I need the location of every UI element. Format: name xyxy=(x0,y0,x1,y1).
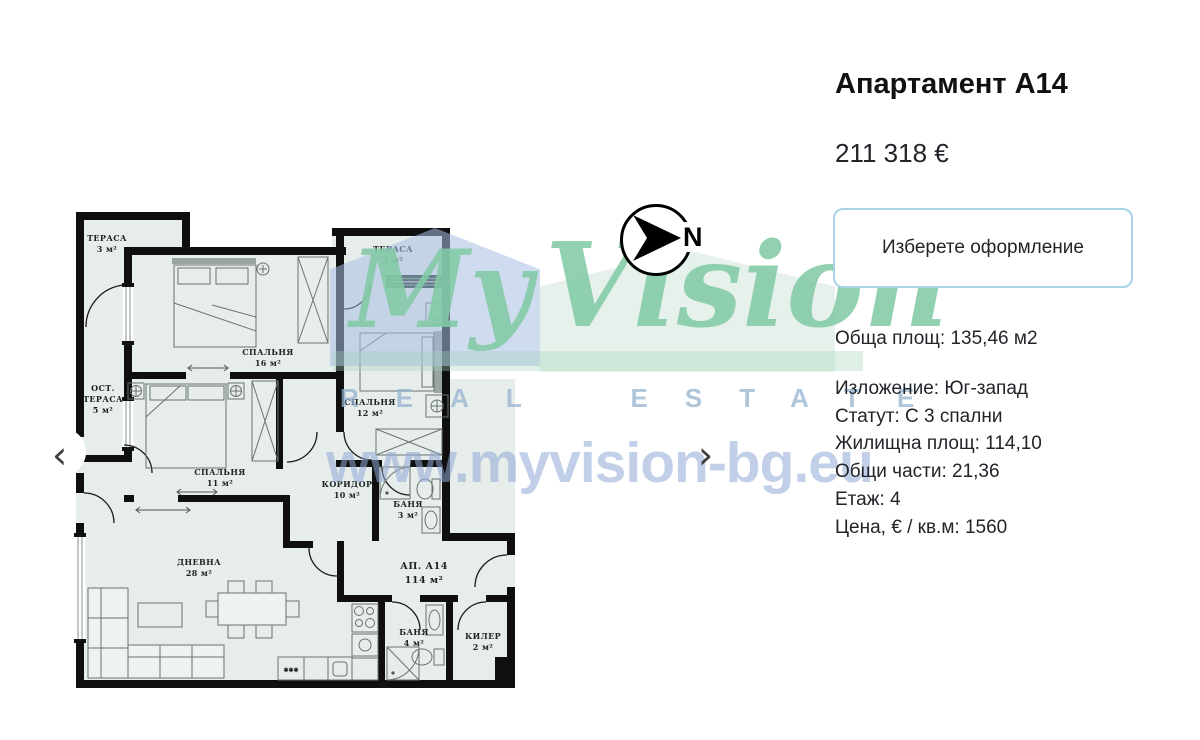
room-area: 4 м² xyxy=(404,638,425,648)
room-label: КИЛЕР xyxy=(465,631,501,641)
page-title: Апартамент А14 xyxy=(835,68,1068,101)
terrace-railing xyxy=(386,275,442,288)
room-label: БАНЯ xyxy=(393,499,423,509)
room-label: ОСТ. xyxy=(91,383,115,393)
room-area: 2 м² xyxy=(473,642,494,652)
room-label: БАНЯ xyxy=(399,627,429,637)
room-area: 114 м² xyxy=(405,575,444,586)
room-area: 16 м² xyxy=(255,358,281,368)
room-area: 12 м² xyxy=(357,408,383,418)
detail-floor: Етаж: 4 xyxy=(835,486,1042,514)
detail-living-area: Жилищна площ: 114,10 xyxy=(835,430,1042,458)
detail-common-parts: Общи части: 21,36 xyxy=(835,458,1042,486)
room-area: 3 м² xyxy=(383,255,404,265)
room-area: 28 м² xyxy=(186,568,212,578)
compass-north-label: N xyxy=(681,222,705,252)
detail-status: Статут: С 3 спални xyxy=(835,403,1042,431)
listing-page: ✱✱✱ ТЕРАСА 3 м² СПАЛЬНЯ 16 м² ОСТ. Т xyxy=(0,0,1200,740)
room-label: ТЕРАСА xyxy=(83,394,123,404)
room-area: 5 м² xyxy=(93,405,114,415)
next-plan-button[interactable]: › xyxy=(698,437,713,473)
room-label: СПАЛЬНЯ xyxy=(344,397,396,407)
room-area: 10 м² xyxy=(334,490,360,500)
total-area-label: Обща площ: 135,46 м2 xyxy=(835,328,1038,350)
room-label: СПАЛЬНЯ xyxy=(242,347,294,357)
floor-plan: ✱✱✱ ТЕРАСА 3 м² СПАЛЬНЯ 16 м² ОСТ. Т xyxy=(60,205,530,695)
prev-plan-button[interactable]: ‹ xyxy=(52,437,67,473)
detail-exposure: Изложение: Юг-запад xyxy=(835,375,1042,403)
room-label: КОРИДОР xyxy=(322,479,373,489)
room-label: АП. А14 xyxy=(400,561,448,572)
kitchen-marks: ✱✱✱ xyxy=(283,667,298,674)
room-label: ТЕРАСА xyxy=(87,233,127,243)
room-label: СПАЛЬНЯ xyxy=(194,467,246,477)
room-area: 11 м² xyxy=(207,478,233,488)
north-arrow-icon xyxy=(623,207,689,273)
room-label: ДНЕВНА xyxy=(177,557,221,567)
room-area: 3 м² xyxy=(97,244,118,254)
detail-price-sqm: Цена, € / кв.м: 1560 xyxy=(835,514,1042,542)
choose-layout-button[interactable]: Изберете оформление xyxy=(833,208,1133,288)
room-label: ТЕРАСА xyxy=(373,244,413,254)
room-area: 3 м² xyxy=(398,510,419,520)
price-label: 211 318 € xyxy=(835,138,949,169)
property-details: Изложение: Юг-запад Статут: С 3 спални Ж… xyxy=(835,375,1042,541)
